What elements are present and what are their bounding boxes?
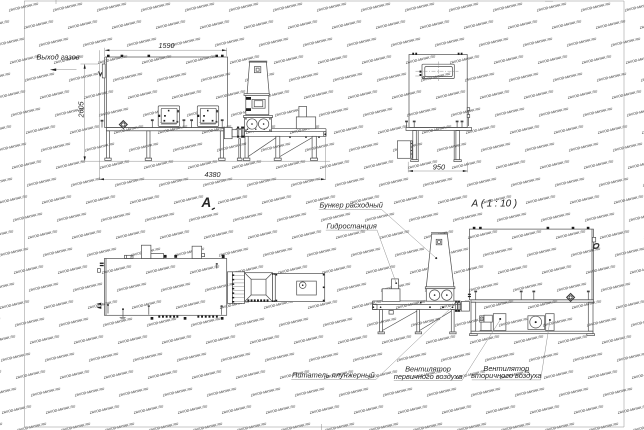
- svg-text:ZAVOD-MAYAK.RU: ZAVOD-MAYAK.RU: [462, 19, 494, 30]
- svg-text:ZAVOD-MAYAK.RU: ZAVOD-MAYAK.RU: [0, 124, 12, 135]
- svg-text:ZAVOD-MAYAK.RU: ZAVOD-MAYAK.RU: [333, 177, 365, 188]
- svg-text:ZAVOD-MAYAK.RU: ZAVOD-MAYAK.RU: [609, 37, 641, 48]
- svg-text:ZAVOD-MAYAK.RU: ZAVOD-MAYAK.RU: [481, 247, 513, 258]
- svg-text:ZAVOD-MAYAK.RU: ZAVOD-MAYAK.RU: [275, 212, 307, 223]
- svg-text:Питатель плунжерный: Питатель плунжерный: [292, 371, 375, 380]
- svg-text:ZAVOD-MAYAK.RU: ZAVOD-MAYAK.RU: [393, 247, 425, 258]
- svg-text:ZAVOD-MAYAK.RU: ZAVOD-MAYAK.RU: [463, 72, 495, 83]
- svg-text:ZAVOD-MAYAK.RU: ZAVOD-MAYAK.RU: [405, 107, 437, 118]
- svg-text:ZAVOD-MAYAK.RU: ZAVOD-MAYAK.RU: [374, 19, 406, 30]
- svg-text:ZAVOD-MAYAK.RU: ZAVOD-MAYAK.RU: [528, 404, 560, 415]
- svg-text:ZAVOD-MAYAK.RU: ZAVOD-MAYAK.RU: [0, 369, 2, 380]
- svg-text:ZAVOD-MAYAK.RU: ZAVOD-MAYAK.RU: [44, 404, 76, 415]
- svg-text:ZAVOD-MAYAK.RU: ZAVOD-MAYAK.RU: [482, 299, 514, 310]
- svg-text:ZAVOD-MAYAK.RU: ZAVOD-MAYAK.RU: [447, 2, 479, 13]
- svg-text:ZAVOD-MAYAK.RU: ZAVOD-MAYAK.RU: [24, 124, 56, 135]
- svg-text:ZAVOD-MAYAK.RU: ZAVOD-MAYAK.RU: [272, 54, 304, 65]
- svg-text:ZAVOD-MAYAK.RU: ZAVOD-MAYAK.RU: [365, 317, 397, 328]
- svg-text:ZAVOD-MAYAK.RU: ZAVOD-MAYAK.RU: [613, 247, 644, 258]
- svg-text:ZAVOD-MAYAK.RU: ZAVOD-MAYAK.RU: [508, 124, 540, 135]
- svg-text:ZAVOD-MAYAK.RU: ZAVOD-MAYAK.RU: [43, 352, 75, 363]
- svg-text:ZAVOD-MAYAK.RU: ZAVOD-MAYAK.RU: [216, 194, 248, 205]
- svg-text:ZAVOD-MAYAK.RU: ZAVOD-MAYAK.RU: [147, 422, 179, 430]
- svg-text:ZAVOD-MAYAK.RU: ZAVOD-MAYAK.RU: [570, 299, 602, 310]
- svg-text:ZAVOD-MAYAK.RU: ZAVOD-MAYAK.RU: [376, 124, 408, 135]
- svg-text:ZAVOD-MAYAK.RU: ZAVOD-MAYAK.RU: [125, 37, 157, 48]
- svg-text:ZAVOD-MAYAK.RU: ZAVOD-MAYAK.RU: [9, 107, 41, 118]
- svg-text:ZAVOD-MAYAK.RU: ZAVOD-MAYAK.RU: [425, 387, 457, 398]
- svg-text:ZAVOD-MAYAK.RU: ZAVOD-MAYAK.RU: [171, 142, 203, 153]
- svg-text:ZAVOD-MAYAK.RU: ZAVOD-MAYAK.RU: [347, 142, 379, 153]
- svg-text:ZAVOD-MAYAK.RU: ZAVOD-MAYAK.RU: [0, 89, 26, 100]
- svg-text:ZAVOD-MAYAK.RU: ZAVOD-MAYAK.RU: [566, 89, 598, 100]
- svg-text:ZAVOD-MAYAK.RU: ZAVOD-MAYAK.RU: [448, 54, 480, 65]
- svg-text:ZAVOD-MAYAK.RU: ZAVOD-MAYAK.RU: [242, 19, 274, 30]
- svg-text:ZAVOD-MAYAK.RU: ZAVOD-MAYAK.RU: [440, 404, 472, 415]
- svg-text:ZAVOD-MAYAK.RU: ZAVOD-MAYAK.RU: [552, 124, 584, 135]
- svg-text:ZAVOD-MAYAK.RU: ZAVOD-MAYAK.RU: [626, 159, 644, 170]
- svg-text:ZAVOD-MAYAK.RU: ZAVOD-MAYAK.RU: [513, 387, 545, 398]
- svg-text:ZAVOD-MAYAK.RU: ZAVOD-MAYAK.RU: [420, 124, 452, 135]
- svg-text:ZAVOD-MAYAK.RU: ZAVOD-MAYAK.RU: [140, 54, 172, 65]
- svg-text:ZAVOD-MAYAK.RU: ZAVOD-MAYAK.RU: [375, 72, 407, 83]
- svg-text:ZAVOD-MAYAK.RU: ZAVOD-MAYAK.RU: [321, 317, 353, 328]
- svg-text:ZAVOD-MAYAK.RU: ZAVOD-MAYAK.RU: [351, 352, 383, 363]
- svg-text:ZAVOD-MAYAK.RU: ZAVOD-MAYAK.RU: [536, 54, 568, 65]
- svg-text:ZAVOD-MAYAK.RU: ZAVOD-MAYAK.RU: [72, 334, 104, 345]
- svg-text:ZAVOD-MAYAK.RU: ZAVOD-MAYAK.RU: [69, 177, 101, 188]
- svg-text:ZAVOD-MAYAK.RU: ZAVOD-MAYAK.RU: [157, 177, 189, 188]
- svg-text:ZAVOD-MAYAK.RU: ZAVOD-MAYAK.RU: [0, 334, 16, 345]
- svg-text:ZAVOD-MAYAK.RU: ZAVOD-MAYAK.RU: [86, 299, 118, 310]
- svg-text:ZAVOD-MAYAK.RU: ZAVOD-MAYAK.RU: [158, 229, 190, 240]
- svg-text:ZAVOD-MAYAK.RU: ZAVOD-MAYAK.RU: [68, 124, 100, 135]
- svg-text:ZAVOD-MAYAK.RU: ZAVOD-MAYAK.RU: [392, 194, 424, 205]
- svg-text:ZAVOD-MAYAK.RU: ZAVOD-MAYAK.RU: [525, 247, 557, 258]
- svg-text:ZAVOD-MAYAK.RU: ZAVOD-MAYAK.RU: [0, 404, 32, 415]
- svg-text:ZAVOD-MAYAK.RU: ZAVOD-MAYAK.RU: [303, 142, 335, 153]
- svg-text:ZAVOD-MAYAK.RU: ZAVOD-MAYAK.RU: [176, 404, 208, 415]
- svg-text:ZAVOD-MAYAK.RU: ZAVOD-MAYAK.RU: [390, 89, 422, 100]
- svg-text:ZAVOD-MAYAK.RU: ZAVOD-MAYAK.RU: [38, 89, 70, 100]
- svg-text:ZAVOD-MAYAK.RU: ZAVOD-MAYAK.RU: [59, 422, 91, 430]
- svg-text:ZAVOD-MAYAK.RU: ZAVOD-MAYAK.RU: [154, 19, 186, 30]
- svg-text:ZAVOD-MAYAK.RU: ZAVOD-MAYAK.RU: [245, 177, 277, 188]
- svg-text:ZAVOD-MAYAK.RU: ZAVOD-MAYAK.RU: [58, 369, 90, 380]
- svg-text:ZAVOD-MAYAK.RU: ZAVOD-MAYAK.RU: [389, 37, 421, 48]
- svg-text:ZAVOD-MAYAK.RU: ZAVOD-MAYAK.RU: [22, 19, 54, 30]
- svg-text:ZAVOD-MAYAK.RU: ZAVOD-MAYAK.RU: [12, 264, 44, 275]
- svg-text:ZAVOD-MAYAK.RU: ZAVOD-MAYAK.RU: [203, 282, 235, 293]
- svg-text:ZAVOD-MAYAK.RU: ZAVOD-MAYAK.RU: [160, 334, 192, 345]
- svg-text:ZAVOD-MAYAK.RU: ZAVOD-MAYAK.RU: [27, 282, 59, 293]
- svg-text:ZAVOD-MAYAK.RU: ZAVOD-MAYAK.RU: [117, 387, 149, 398]
- svg-text:ZAVOD-MAYAK.RU: ZAVOD-MAYAK.RU: [28, 334, 60, 345]
- svg-text:ZAVOD-MAYAK.RU: ZAVOD-MAYAK.RU: [360, 54, 392, 65]
- svg-text:ZAVOD-MAYAK.RU: ZAVOD-MAYAK.RU: [571, 352, 603, 363]
- svg-text:Выход газов: Выход газов: [37, 53, 80, 62]
- svg-text:ZAVOD-MAYAK.RU: ZAVOD-MAYAK.RU: [624, 54, 644, 65]
- svg-text:ZAVOD-MAYAK.RU: ZAVOD-MAYAK.RU: [202, 229, 234, 240]
- svg-text:ZAVOD-MAYAK.RU: ZAVOD-MAYAK.RU: [116, 334, 148, 345]
- svg-text:ZAVOD-MAYAK.RU: ZAVOD-MAYAK.RU: [493, 107, 525, 118]
- svg-text:ZAVOD-MAYAK.RU: ZAVOD-MAYAK.RU: [114, 229, 146, 240]
- svg-text:ZAVOD-MAYAK.RU: ZAVOD-MAYAK.RU: [161, 387, 193, 398]
- svg-text:ZAVOD-MAYAK.RU: ZAVOD-MAYAK.RU: [0, 352, 31, 363]
- svg-text:ZAVOD-MAYAK.RU: ZAVOD-MAYAK.RU: [506, 19, 538, 30]
- svg-text:ZAVOD-MAYAK.RU: ZAVOD-MAYAK.RU: [96, 54, 128, 65]
- svg-text:ZAVOD-MAYAK.RU: ZAVOD-MAYAK.RU: [419, 72, 451, 83]
- svg-text:ZAVOD-MAYAK.RU: ZAVOD-MAYAK.RU: [541, 317, 573, 328]
- svg-text:ZAVOD-MAYAK.RU: ZAVOD-MAYAK.RU: [159, 282, 191, 293]
- svg-text:ZAVOD-MAYAK.RU: ZAVOD-MAYAK.RU: [411, 422, 443, 430]
- svg-text:ZAVOD-MAYAK.RU: ZAVOD-MAYAK.RU: [14, 369, 46, 380]
- svg-text:ZAVOD-MAYAK.RU: ZAVOD-MAYAK.RU: [627, 212, 644, 223]
- svg-text:ZAVOD-MAYAK.RU: ZAVOD-MAYAK.RU: [101, 317, 133, 328]
- svg-text:ZAVOD-MAYAK.RU: ZAVOD-MAYAK.RU: [7, 2, 39, 13]
- svg-text:ZAVOD-MAYAK.RU: ZAVOD-MAYAK.RU: [84, 194, 116, 205]
- svg-text:ZAVOD-MAYAK.RU: ZAVOD-MAYAK.RU: [499, 422, 531, 430]
- svg-text:ZAVOD-MAYAK.RU: ZAVOD-MAYAK.RU: [112, 124, 144, 135]
- svg-text:ZAVOD-MAYAK.RU: ZAVOD-MAYAK.RU: [483, 352, 515, 363]
- svg-text:ZAVOD-MAYAK.RU: ZAVOD-MAYAK.RU: [466, 229, 498, 240]
- svg-text:ZAVOD-MAYAK.RU: ZAVOD-MAYAK.RU: [289, 177, 321, 188]
- svg-text:ZAVOD-MAYAK.RU: ZAVOD-MAYAK.RU: [538, 159, 570, 170]
- svg-text:ZAVOD-MAYAK.RU: ZAVOD-MAYAK.RU: [334, 229, 366, 240]
- svg-text:ZAVOD-MAYAK.RU: ZAVOD-MAYAK.RU: [95, 2, 127, 13]
- svg-text:ZAVOD-MAYAK.RU: ZAVOD-MAYAK.RU: [582, 159, 614, 170]
- svg-text:ZAVOD-MAYAK.RU: ZAVOD-MAYAK.RU: [0, 194, 28, 205]
- svg-text:ZAVOD-MAYAK.RU: ZAVOD-MAYAK.RU: [0, 422, 3, 430]
- svg-text:ZAVOD-MAYAK.RU: ZAVOD-MAYAK.RU: [128, 194, 160, 205]
- svg-text:ZAVOD-MAYAK.RU: ZAVOD-MAYAK.RU: [587, 422, 619, 430]
- svg-text:ZAVOD-MAYAK.RU: ZAVOD-MAYAK.RU: [55, 212, 87, 223]
- svg-text:ZAVOD-MAYAK.RU: ZAVOD-MAYAK.RU: [464, 124, 496, 135]
- svg-text:ZAVOD-MAYAK.RU: ZAVOD-MAYAK.RU: [0, 299, 30, 310]
- svg-text:ZAVOD-MAYAK.RU: ZAVOD-MAYAK.RU: [362, 159, 394, 170]
- svg-text:ZAVOD-MAYAK.RU: ZAVOD-MAYAK.RU: [227, 2, 259, 13]
- svg-text:ZAVOD-MAYAK.RU: ZAVOD-MAYAK.RU: [521, 37, 553, 48]
- svg-text:ZAVOD-MAYAK.RU: ZAVOD-MAYAK.RU: [418, 19, 450, 30]
- svg-text:ZAVOD-MAYAK.RU: ZAVOD-MAYAK.RU: [145, 317, 177, 328]
- svg-text:ZAVOD-MAYAK.RU: ZAVOD-MAYAK.RU: [249, 387, 281, 398]
- svg-text:ZAVOD-MAYAK.RU: ZAVOD-MAYAK.RU: [550, 19, 582, 30]
- svg-text:ZAVOD-MAYAK.RU: ZAVOD-MAYAK.RU: [54, 159, 86, 170]
- svg-text:ZAVOD-MAYAK.RU: ZAVOD-MAYAK.RU: [100, 264, 132, 275]
- svg-text:ZAVOD-MAYAK.RU: ZAVOD-MAYAK.RU: [540, 264, 572, 275]
- svg-text:ZAVOD-MAYAK.RU: ZAVOD-MAYAK.RU: [305, 247, 337, 258]
- svg-text:ZAVOD-MAYAK.RU: ZAVOD-MAYAK.RU: [616, 404, 644, 415]
- svg-text:ZAVOD-MAYAK.RU: ZAVOD-MAYAK.RU: [478, 89, 510, 100]
- svg-text:ZAVOD-MAYAK.RU: ZAVOD-MAYAK.RU: [331, 72, 363, 83]
- svg-text:ZAVOD-MAYAK.RU: ZAVOD-MAYAK.RU: [507, 72, 539, 83]
- svg-text:ZAVOD-MAYAK.RU: ZAVOD-MAYAK.RU: [449, 107, 481, 118]
- svg-text:ZAVOD-MAYAK.RU: ZAVOD-MAYAK.RU: [103, 422, 135, 430]
- svg-text:ZAVOD-MAYAK.RU: ZAVOD-MAYAK.RU: [638, 19, 644, 30]
- svg-text:ZAVOD-MAYAK.RU: ZAVOD-MAYAK.RU: [286, 19, 318, 30]
- svg-text:ZAVOD-MAYAK.RU: ZAVOD-MAYAK.RU: [465, 177, 497, 188]
- svg-text:ZAVOD-MAYAK.RU: ZAVOD-MAYAK.RU: [0, 19, 10, 30]
- svg-text:ZAVOD-MAYAK.RU: ZAVOD-MAYAK.RU: [111, 72, 143, 83]
- svg-text:ZAVOD-MAYAK.RU: ZAVOD-MAYAK.RU: [597, 177, 629, 188]
- svg-text:ZAVOD-MAYAK.RU: ZAVOD-MAYAK.RU: [522, 89, 554, 100]
- svg-text:ZAVOD-MAYAK.RU: ZAVOD-MAYAK.RU: [293, 387, 325, 398]
- svg-text:ZAVOD-MAYAK.RU: ZAVOD-MAYAK.RU: [277, 317, 309, 328]
- svg-text:ZAVOD-MAYAK.RU: ZAVOD-MAYAK.RU: [187, 212, 219, 223]
- svg-text:ZAVOD-MAYAK.RU: ZAVOD-MAYAK.RU: [612, 194, 644, 205]
- svg-text:ZAVOD-MAYAK.RU: ZAVOD-MAYAK.RU: [213, 37, 245, 48]
- svg-text:ZAVOD-MAYAK.RU: ZAVOD-MAYAK.RU: [610, 89, 642, 100]
- svg-text:ZAVOD-MAYAK.RU: ZAVOD-MAYAK.RU: [585, 317, 617, 328]
- svg-text:ZAVOD-MAYAK.RU: ZAVOD-MAYAK.RU: [143, 212, 175, 223]
- svg-text:ZAVOD-MAYAK.RU: ZAVOD-MAYAK.RU: [623, 2, 644, 13]
- svg-text:ZAVOD-MAYAK.RU: ZAVOD-MAYAK.RU: [572, 404, 604, 415]
- svg-text:вторичного воздуха: вторичного воздуха: [471, 371, 541, 380]
- svg-text:ZAVOD-MAYAK.RU: ZAVOD-MAYAK.RU: [115, 282, 147, 293]
- svg-text:ZAVOD-MAYAK.RU: ZAVOD-MAYAK.RU: [381, 387, 413, 398]
- svg-text:ZAVOD-MAYAK.RU: ZAVOD-MAYAK.RU: [433, 37, 465, 48]
- svg-text:ZAVOD-MAYAK.RU: ZAVOD-MAYAK.RU: [308, 404, 340, 415]
- svg-text:ZAVOD-MAYAK.RU: ZAVOD-MAYAK.RU: [279, 422, 311, 430]
- svg-text:ZAVOD-MAYAK.RU: ZAVOD-MAYAK.RU: [257, 37, 289, 48]
- svg-text:ZAVOD-MAYAK.RU: ZAVOD-MAYAK.RU: [512, 334, 544, 345]
- svg-text:ZAVOD-MAYAK.RU: ZAVOD-MAYAK.RU: [172, 194, 204, 205]
- svg-text:ZAVOD-MAYAK.RU: ZAVOD-MAYAK.RU: [73, 387, 105, 398]
- svg-text:ZAVOD-MAYAK.RU: ZAVOD-MAYAK.RU: [0, 229, 14, 240]
- svg-text:ZAVOD-MAYAK.RU: ZAVOD-MAYAK.RU: [455, 422, 487, 430]
- svg-text:ZAVOD-MAYAK.RU: ZAVOD-MAYAK.RU: [97, 107, 129, 118]
- svg-text:ZAVOD-MAYAK.RU: ZAVOD-MAYAK.RU: [345, 37, 377, 48]
- svg-text:ZAVOD-MAYAK.RU: ZAVOD-MAYAK.RU: [611, 142, 643, 153]
- svg-text:ZAVOD-MAYAK.RU: ZAVOD-MAYAK.RU: [421, 177, 453, 188]
- svg-text:ZAVOD-MAYAK.RU: ZAVOD-MAYAK.RU: [41, 247, 73, 258]
- svg-text:ZAVOD-MAYAK.RU: ZAVOD-MAYAK.RU: [39, 142, 71, 153]
- svg-text:ZAVOD-MAYAK.RU: ZAVOD-MAYAK.RU: [67, 72, 99, 83]
- svg-text:ZAVOD-MAYAK.RU: ZAVOD-MAYAK.RU: [380, 334, 412, 345]
- svg-text:ZAVOD-MAYAK.RU: ZAVOD-MAYAK.RU: [614, 299, 644, 310]
- svg-text:ZAVOD-MAYAK.RU: ZAVOD-MAYAK.RU: [113, 177, 145, 188]
- svg-text:ZAVOD-MAYAK.RU: ZAVOD-MAYAK.RU: [261, 247, 293, 258]
- svg-text:ZAVOD-MAYAK.RU: ZAVOD-MAYAK.RU: [367, 422, 399, 430]
- svg-text:ZAVOD-MAYAK.RU: ZAVOD-MAYAK.RU: [335, 282, 367, 293]
- svg-text:ZAVOD-MAYAK.RU: ZAVOD-MAYAK.RU: [190, 369, 222, 380]
- svg-text:ZAVOD-MAYAK.RU: ZAVOD-MAYAK.RU: [81, 37, 113, 48]
- svg-text:ZAVOD-MAYAK.RU: ZAVOD-MAYAK.RU: [271, 2, 303, 13]
- svg-text:ZAVOD-MAYAK.RU: ZAVOD-MAYAK.RU: [0, 387, 17, 398]
- svg-text:ZAVOD-MAYAK.RU: ZAVOD-MAYAK.RU: [595, 72, 627, 83]
- svg-text:2605: 2605: [77, 101, 86, 119]
- svg-text:ZAVOD-MAYAK.RU: ZAVOD-MAYAK.RU: [396, 404, 428, 415]
- svg-text:А ( 1 : 10 ): А ( 1 : 10 ): [471, 199, 518, 210]
- svg-text:ZAVOD-MAYAK.RU: ZAVOD-MAYAK.RU: [477, 37, 509, 48]
- svg-text:ZAVOD-MAYAK.RU: ZAVOD-MAYAK.RU: [198, 19, 230, 30]
- svg-text:ZAVOD-MAYAK.RU: ZAVOD-MAYAK.RU: [37, 37, 69, 48]
- svg-text:ZAVOD-MAYAK.RU: ZAVOD-MAYAK.RU: [13, 317, 45, 328]
- svg-text:ZAVOD-MAYAK.RU: ZAVOD-MAYAK.RU: [450, 159, 482, 170]
- svg-text:ZAVOD-MAYAK.RU: ZAVOD-MAYAK.RU: [170, 89, 202, 100]
- svg-text:ZAVOD-MAYAK.RU: ZAVOD-MAYAK.RU: [568, 194, 600, 205]
- svg-text:ZAVOD-MAYAK.RU: ZAVOD-MAYAK.RU: [56, 264, 88, 275]
- svg-text:ZAVOD-MAYAK.RU: ZAVOD-MAYAK.RU: [323, 422, 355, 430]
- svg-text:ZAVOD-MAYAK.RU: ZAVOD-MAYAK.RU: [0, 142, 27, 153]
- svg-text:ZAVOD-MAYAK.RU: ZAVOD-MAYAK.RU: [535, 2, 567, 13]
- svg-text:ZAVOD-MAYAK.RU: ZAVOD-MAYAK.RU: [40, 194, 72, 205]
- svg-text:ZAVOD-MAYAK.RU: ZAVOD-MAYAK.RU: [82, 89, 114, 100]
- svg-text:4380: 4380: [205, 170, 221, 179]
- svg-text:ZAVOD-MAYAK.RU: ZAVOD-MAYAK.RU: [139, 2, 171, 13]
- svg-text:ZAVOD-MAYAK.RU: ZAVOD-MAYAK.RU: [496, 264, 528, 275]
- svg-text:ZAVOD-MAYAK.RU: ZAVOD-MAYAK.RU: [625, 107, 644, 118]
- svg-text:ZAVOD-MAYAK.RU: ZAVOD-MAYAK.RU: [596, 124, 628, 135]
- svg-text:ZAVOD-MAYAK.RU: ZAVOD-MAYAK.RU: [551, 72, 583, 83]
- svg-text:ZAVOD-MAYAK.RU: ZAVOD-MAYAK.RU: [524, 194, 556, 205]
- svg-text:ZAVOD-MAYAK.RU: ZAVOD-MAYAK.RU: [346, 89, 378, 100]
- svg-text:ZAVOD-MAYAK.RU: ZAVOD-MAYAK.RU: [317, 107, 349, 118]
- svg-text:ZAVOD-MAYAK.RU: ZAVOD-MAYAK.RU: [70, 229, 102, 240]
- svg-text:ZAVOD-MAYAK.RU: ZAVOD-MAYAK.RU: [565, 37, 597, 48]
- svg-text:ZAVOD-MAYAK.RU: ZAVOD-MAYAK.RU: [332, 124, 364, 135]
- svg-text:ZAVOD-MAYAK.RU: ZAVOD-MAYAK.RU: [352, 404, 384, 415]
- svg-text:ZAVOD-MAYAK.RU: ZAVOD-MAYAK.RU: [320, 264, 352, 275]
- svg-text:ZAVOD-MAYAK.RU: ZAVOD-MAYAK.RU: [99, 212, 131, 223]
- svg-text:ZAVOD-MAYAK.RU: ZAVOD-MAYAK.RU: [586, 369, 618, 380]
- svg-text:ZAVOD-MAYAK.RU: ZAVOD-MAYAK.RU: [0, 247, 29, 258]
- svg-text:ZAVOD-MAYAK.RU: ZAVOD-MAYAK.RU: [615, 352, 644, 363]
- svg-text:ZAVOD-MAYAK.RU: ZAVOD-MAYAK.RU: [523, 142, 555, 153]
- svg-text:ZAVOD-MAYAK.RU: ZAVOD-MAYAK.RU: [11, 212, 43, 223]
- svg-text:ZAVOD-MAYAK.RU: ZAVOD-MAYAK.RU: [377, 177, 409, 188]
- svg-text:Бункер расходный: Бункер расходный: [320, 201, 383, 210]
- svg-text:ZAVOD-MAYAK.RU: ZAVOD-MAYAK.RU: [543, 422, 575, 430]
- svg-text:ZAVOD-MAYAK.RU: ZAVOD-MAYAK.RU: [491, 2, 523, 13]
- svg-text:ZAVOD-MAYAK.RU: ZAVOD-MAYAK.RU: [555, 282, 587, 293]
- svg-text:ZAVOD-MAYAK.RU: ZAVOD-MAYAK.RU: [219, 352, 251, 363]
- svg-text:1590: 1590: [159, 41, 175, 50]
- svg-text:ZAVOD-MAYAK.RU: ZAVOD-MAYAK.RU: [484, 404, 516, 415]
- svg-text:ZAVOD-MAYAK.RU: ZAVOD-MAYAK.RU: [583, 212, 615, 223]
- svg-text:первичного воздуха: первичного воздуха: [394, 372, 462, 381]
- svg-text:ZAVOD-MAYAK.RU: ZAVOD-MAYAK.RU: [598, 229, 630, 240]
- svg-text:ZAVOD-MAYAK.RU: ZAVOD-MAYAK.RU: [66, 19, 98, 30]
- svg-text:ZAVOD-MAYAK.RU: ZAVOD-MAYAK.RU: [409, 317, 441, 328]
- svg-text:ZAVOD-MAYAK.RU: ZAVOD-MAYAK.RU: [361, 107, 393, 118]
- svg-text:ZAVOD-MAYAK.RU: ZAVOD-MAYAK.RU: [0, 317, 1, 328]
- svg-text:ZAVOD-MAYAK.RU: ZAVOD-MAYAK.RU: [469, 387, 501, 398]
- svg-text:ZAVOD-MAYAK.RU: ZAVOD-MAYAK.RU: [526, 299, 558, 310]
- svg-text:ZAVOD-MAYAK.RU: ZAVOD-MAYAK.RU: [318, 159, 350, 170]
- svg-text:ZAVOD-MAYAK.RU: ZAVOD-MAYAK.RU: [349, 247, 381, 258]
- svg-text:ZAVOD-MAYAK.RU: ZAVOD-MAYAK.RU: [231, 212, 263, 223]
- svg-text:ZAVOD-MAYAK.RU: ZAVOD-MAYAK.RU: [307, 352, 339, 363]
- svg-text:ZAVOD-MAYAK.RU: ZAVOD-MAYAK.RU: [220, 404, 252, 415]
- svg-text:ZAVOD-MAYAK.RU: ZAVOD-MAYAK.RU: [214, 89, 246, 100]
- svg-text:ZAVOD-MAYAK.RU: ZAVOD-MAYAK.RU: [557, 387, 589, 398]
- svg-text:ZAVOD-MAYAK.RU: ZAVOD-MAYAK.RU: [263, 352, 295, 363]
- svg-text:ZAVOD-MAYAK.RU: ZAVOD-MAYAK.RU: [26, 229, 58, 240]
- svg-text:ZAVOD-MAYAK.RU: ZAVOD-MAYAK.RU: [580, 54, 612, 65]
- svg-text:ZAVOD-MAYAK.RU: ZAVOD-MAYAK.RU: [527, 352, 559, 363]
- svg-text:ZAVOD-MAYAK.RU: ZAVOD-MAYAK.RU: [57, 317, 89, 328]
- svg-text:ZAVOD-MAYAK.RU: ZAVOD-MAYAK.RU: [87, 352, 119, 363]
- svg-text:ZAVOD-MAYAK.RU: ZAVOD-MAYAK.RU: [467, 282, 499, 293]
- svg-text:ZAVOD-MAYAK.RU: ZAVOD-MAYAK.RU: [403, 2, 435, 13]
- svg-text:ZAVOD-MAYAK.RU: ZAVOD-MAYAK.RU: [336, 334, 368, 345]
- svg-text:ZAVOD-MAYAK.RU: ZAVOD-MAYAK.RU: [451, 212, 483, 223]
- svg-text:ZAVOD-MAYAK.RU: ZAVOD-MAYAK.RU: [174, 299, 206, 310]
- svg-text:ZAVOD-MAYAK.RU: ZAVOD-MAYAK.RU: [184, 54, 216, 65]
- svg-text:ZAVOD-MAYAK.RU: ZAVOD-MAYAK.RU: [42, 299, 74, 310]
- svg-text:ZAVOD-MAYAK.RU: ZAVOD-MAYAK.RU: [424, 334, 456, 345]
- svg-text:ZAVOD-MAYAK.RU: ZAVOD-MAYAK.RU: [0, 37, 25, 48]
- svg-text:ZAVOD-MAYAK.RU: ZAVOD-MAYAK.RU: [15, 422, 47, 430]
- svg-text:ZAVOD-MAYAK.RU: ZAVOD-MAYAK.RU: [248, 334, 280, 345]
- svg-text:ZAVOD-MAYAK.RU: ZAVOD-MAYAK.RU: [301, 37, 333, 48]
- svg-text:ZAVOD-MAYAK.RU: ZAVOD-MAYAK.RU: [316, 54, 348, 65]
- svg-text:ZAVOD-MAYAK.RU: ZAVOD-MAYAK.RU: [584, 264, 616, 275]
- svg-text:ZAVOD-MAYAK.RU: ZAVOD-MAYAK.RU: [556, 334, 588, 345]
- svg-text:ZAVOD-MAYAK.RU: ZAVOD-MAYAK.RU: [452, 264, 484, 275]
- svg-text:ZAVOD-MAYAK.RU: ZAVOD-MAYAK.RU: [127, 142, 159, 153]
- svg-text:ZAVOD-MAYAK.RU: ZAVOD-MAYAK.RU: [629, 317, 644, 328]
- svg-text:ZAVOD-MAYAK.RU: ZAVOD-MAYAK.RU: [581, 107, 613, 118]
- svg-text:ZAVOD-MAYAK.RU: ZAVOD-MAYAK.RU: [199, 72, 231, 83]
- svg-text:ZAVOD-MAYAK.RU: ZAVOD-MAYAK.RU: [554, 229, 586, 240]
- svg-text:ZAVOD-MAYAK.RU: ZAVOD-MAYAK.RU: [511, 282, 543, 293]
- svg-text:ZAVOD-MAYAK.RU: ZAVOD-MAYAK.RU: [601, 387, 633, 398]
- svg-text:ZAVOD-MAYAK.RU: ZAVOD-MAYAK.RU: [510, 229, 542, 240]
- svg-text:ZAVOD-MAYAK.RU: ZAVOD-MAYAK.RU: [509, 177, 541, 188]
- svg-text:ZAVOD-MAYAK.RU: ZAVOD-MAYAK.RU: [235, 422, 267, 430]
- svg-text:ZAVOD-MAYAK.RU: ZAVOD-MAYAK.RU: [234, 369, 266, 380]
- svg-text:ZAVOD-MAYAK.RU: ZAVOD-MAYAK.RU: [175, 352, 207, 363]
- svg-text:ZAVOD-MAYAK.RU: ZAVOD-MAYAK.RU: [630, 369, 644, 380]
- svg-text:ZAVOD-MAYAK.RU: ZAVOD-MAYAK.RU: [264, 404, 296, 415]
- svg-text:ZAVOD-MAYAK.RU: ZAVOD-MAYAK.RU: [233, 317, 265, 328]
- svg-text:ZAVOD-MAYAK.RU: ZAVOD-MAYAK.RU: [10, 159, 42, 170]
- svg-text:ZAVOD-MAYAK.RU: ZAVOD-MAYAK.RU: [0, 282, 15, 293]
- svg-text:ZAVOD-MAYAK.RU: ZAVOD-MAYAK.RU: [497, 317, 529, 328]
- svg-text:ZAVOD-MAYAK.RU: ZAVOD-MAYAK.RU: [102, 369, 134, 380]
- svg-text:ZAVOD-MAYAK.RU: ZAVOD-MAYAK.RU: [205, 387, 237, 398]
- svg-text:ZAVOD-MAYAK.RU: ZAVOD-MAYAK.RU: [146, 369, 178, 380]
- svg-text:ZAVOD-MAYAK.RU: ZAVOD-MAYAK.RU: [183, 2, 215, 13]
- svg-text:ZAVOD-MAYAK.RU: ZAVOD-MAYAK.RU: [287, 72, 319, 83]
- svg-text:ZAVOD-MAYAK.RU: ZAVOD-MAYAK.RU: [600, 334, 632, 345]
- svg-text:ZAVOD-MAYAK.RU: ZAVOD-MAYAK.RU: [71, 282, 103, 293]
- svg-text:А: А: [201, 195, 212, 210]
- svg-text:ZAVOD-MAYAK.RU: ZAVOD-MAYAK.RU: [29, 387, 61, 398]
- svg-text:ZAVOD-MAYAK.RU: ZAVOD-MAYAK.RU: [434, 89, 466, 100]
- svg-text:ZAVOD-MAYAK.RU: ZAVOD-MAYAK.RU: [439, 352, 471, 363]
- svg-text:ZAVOD-MAYAK.RU: ZAVOD-MAYAK.RU: [495, 212, 527, 223]
- svg-text:ZAVOD-MAYAK.RU: ZAVOD-MAYAK.RU: [292, 334, 324, 345]
- svg-text:ZAVOD-MAYAK.RU: ZAVOD-MAYAK.RU: [494, 159, 526, 170]
- svg-text:ZAVOD-MAYAK.RU: ZAVOD-MAYAK.RU: [155, 72, 187, 83]
- svg-text:ZAVOD-MAYAK.RU: ZAVOD-MAYAK.RU: [110, 19, 142, 30]
- svg-text:ZAVOD-MAYAK.RU: ZAVOD-MAYAK.RU: [85, 247, 117, 258]
- svg-text:ZAVOD-MAYAK.RU: ZAVOD-MAYAK.RU: [492, 54, 524, 65]
- svg-text:ZAVOD-MAYAK.RU: ZAVOD-MAYAK.RU: [260, 194, 292, 205]
- svg-text:ZAVOD-MAYAK.RU: ZAVOD-MAYAK.RU: [594, 19, 626, 30]
- svg-text:ZAVOD-MAYAK.RU: ZAVOD-MAYAK.RU: [330, 19, 362, 30]
- svg-text:ZAVOD-MAYAK.RU: ZAVOD-MAYAK.RU: [479, 142, 511, 153]
- svg-text:ZAVOD-MAYAK.RU: ZAVOD-MAYAK.RU: [435, 142, 467, 153]
- svg-text:ZAVOD-MAYAK.RU: ZAVOD-MAYAK.RU: [188, 264, 220, 275]
- svg-text:ZAVOD-MAYAK.RU: ZAVOD-MAYAK.RU: [539, 212, 571, 223]
- svg-text:ZAVOD-MAYAK.RU: ZAVOD-MAYAK.RU: [25, 177, 57, 188]
- svg-text:ZAVOD-MAYAK.RU: ZAVOD-MAYAK.RU: [315, 2, 347, 13]
- svg-text:ZAVOD-MAYAK.RU: ZAVOD-MAYAK.RU: [395, 352, 427, 363]
